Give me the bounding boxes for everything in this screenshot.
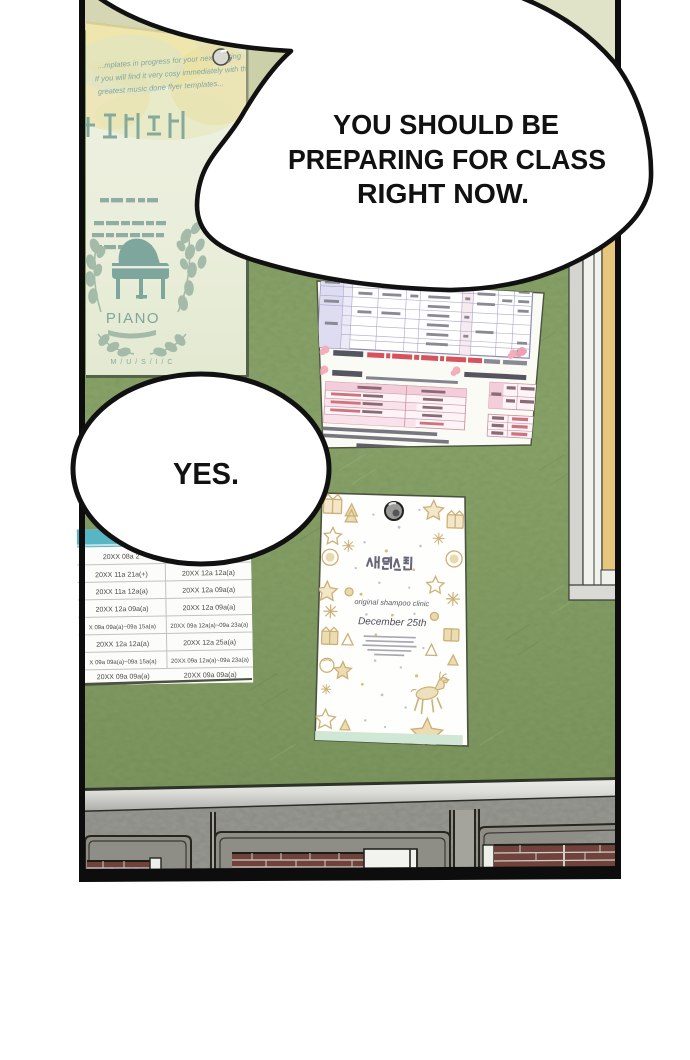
- svg-text:20XX 12a 12a(a): 20XX 12a 12a(a): [182, 570, 235, 578]
- svg-text:20XX 08a 2: 20XX 08a 2: [103, 553, 140, 561]
- svg-text:YES.: YES.: [173, 456, 239, 491]
- svg-text:20XX 12a 09a(a): 20XX 12a 09a(a): [182, 587, 235, 595]
- svg-text:M / U / S / I / C: M / U / S / I / C: [111, 359, 174, 366]
- svg-text:December 25th: December 25th: [358, 616, 427, 629]
- svg-text:PIANO: PIANO: [106, 310, 160, 327]
- svg-text:20XX 09a 09a(a): 20XX 09a 09a(a): [184, 672, 237, 680]
- svg-text:20XX 09a 09a(a): 20XX 09a 09a(a): [97, 673, 150, 681]
- svg-text:20XX 12a 12a(a): 20XX 12a 12a(a): [96, 641, 149, 649]
- svg-text:20XX 12a 09a(a): 20XX 12a 09a(a): [183, 604, 236, 612]
- svg-text:X 09a 09a(a)~09a 15a(a): X 09a 09a(a)~09a 15a(a): [89, 624, 156, 631]
- svg-text:YOU SHOULD BE: YOU SHOULD BE: [333, 109, 559, 140]
- svg-text:X 09a 09a(a)~09a 15a(a): X 09a 09a(a)~09a 15a(a): [89, 659, 156, 666]
- svg-text:20XX 12a 09a(a): 20XX 12a 09a(a): [96, 606, 149, 614]
- svg-text:20XX 11a 12a(a): 20XX 11a 12a(a): [95, 588, 148, 596]
- svg-text:20XX 12a 25a(a): 20XX 12a 25a(a): [183, 639, 236, 647]
- svg-text:PREPARING FOR CLASS: PREPARING FOR CLASS: [288, 144, 606, 175]
- svg-text:RIGHT NOW.: RIGHT NOW.: [357, 178, 529, 209]
- svg-text:20XX 11a 21a(+): 20XX 11a 21a(+): [95, 571, 148, 579]
